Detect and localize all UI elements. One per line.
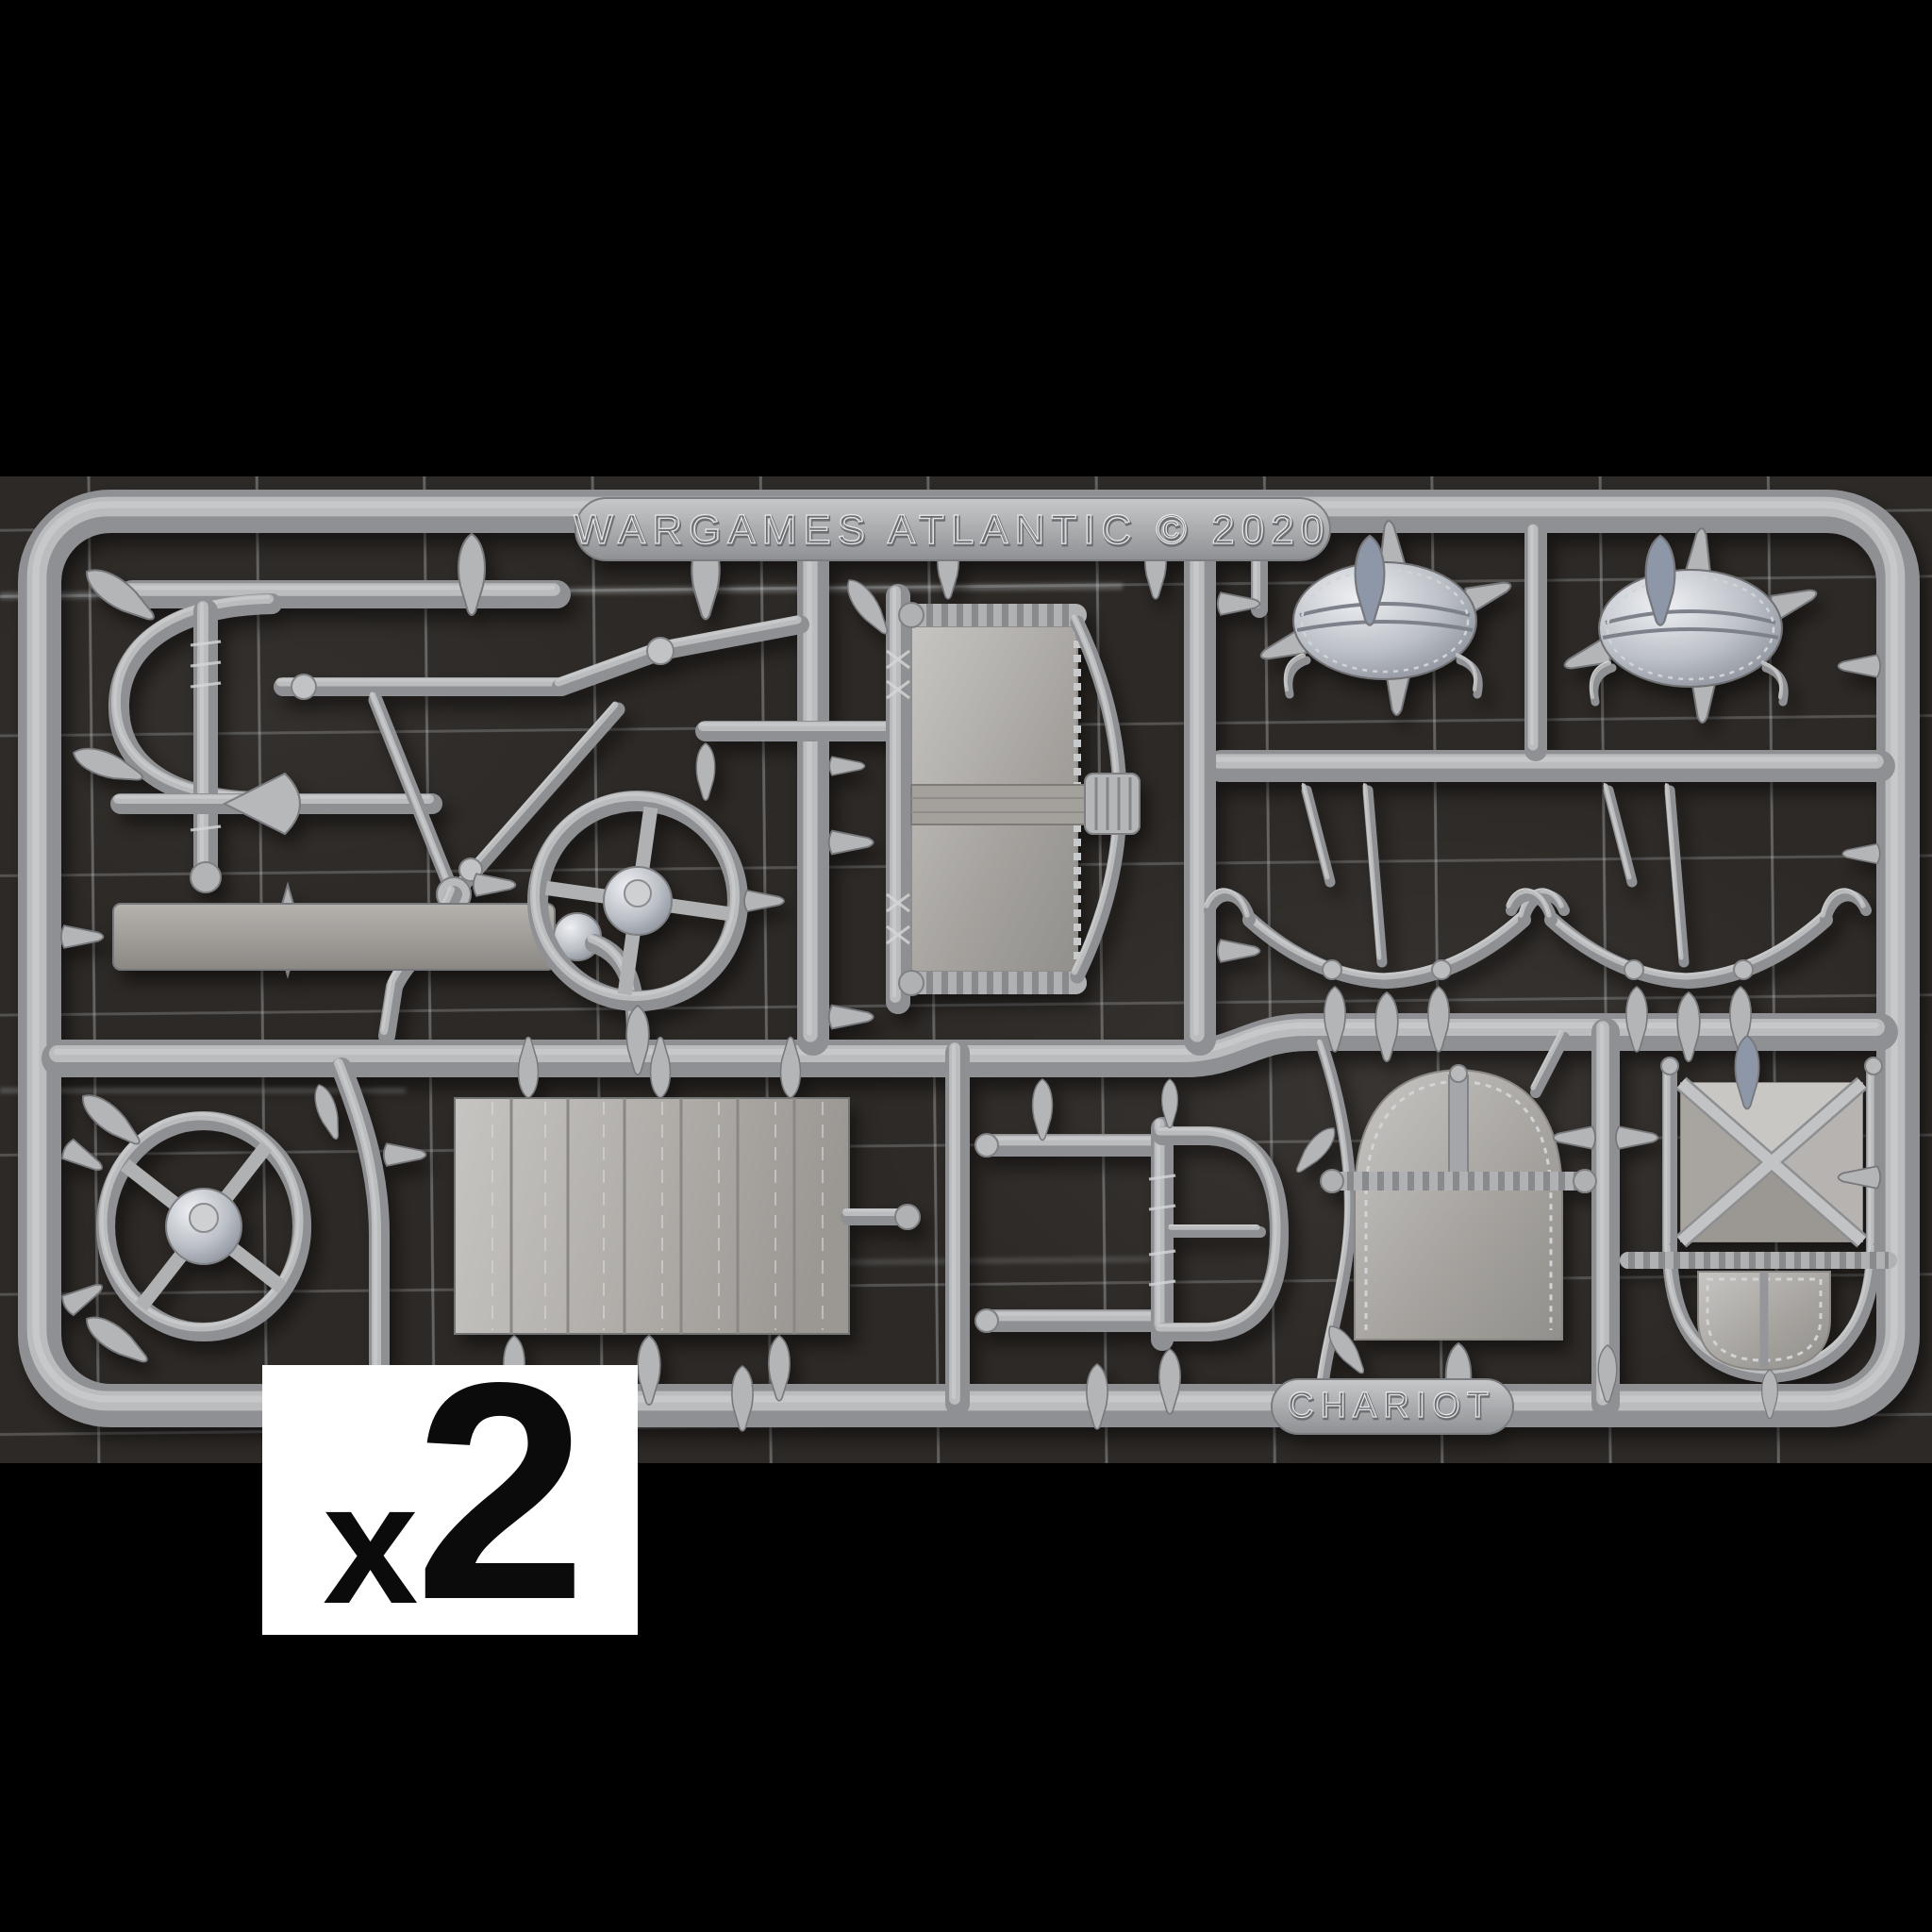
chariot-floor-panel-part [829,590,1140,1028]
sprue-photo: WARGAMES ATLANTIC © 2020 WARGAMES ATLANT… [0,476,1932,1463]
chariot-sprue: WARGAMES ATLANTIC © 2020 WARGAMES ATLANT… [0,476,1932,1463]
brand-tab-text: WARGAMES ATLANTIC © 2020 [574,507,1330,553]
x-braced-front-panel-part [1628,1036,1889,1419]
part-name-tab: CHARIOT CHARIOT [1272,1379,1513,1434]
handrail-d-frame-part [975,1079,1279,1414]
product-photo-canvas: WARGAMES ATLANTIC © 2020 WARGAMES ATLANT… [0,0,1932,1932]
chariot-wheel-part [474,724,943,1074]
spearhead-part [225,774,300,834]
quantity-prefix: x [323,1478,414,1608]
quantity-value: 2 [414,1374,576,1608]
arched-side-panel-part [1321,1031,1596,1421]
part-name-tab-text: CHARIOT [1288,1386,1495,1425]
wheel-hub-dome-part [1560,527,1820,723]
quantity-label: x2 [262,1365,638,1635]
brand-tab: WARGAMES ATLANTIC © 2020 WARGAMES ATLANT… [574,498,1331,560]
